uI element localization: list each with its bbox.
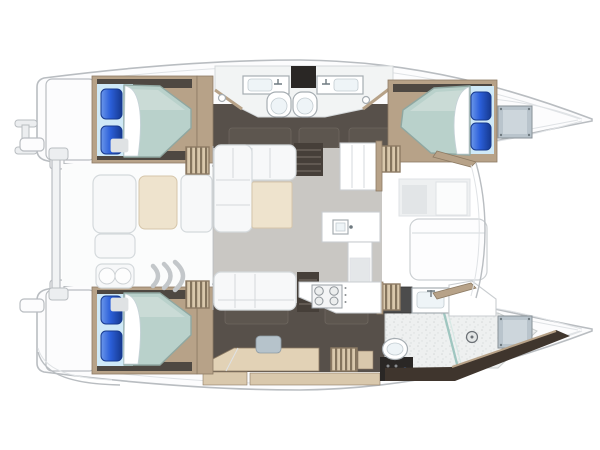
deck-hatch-icon	[498, 106, 532, 138]
step-landing	[358, 351, 373, 369]
starboard-aft-cabin	[92, 287, 197, 374]
winch-port	[111, 139, 128, 152]
companionway-steps	[331, 348, 357, 371]
shower-drain-left	[219, 95, 226, 102]
cockpit	[62, 164, 212, 290]
companionway-alcove-port	[294, 143, 323, 176]
davit-arm-starboard	[20, 299, 44, 312]
shower-drain-right	[363, 97, 370, 104]
shower-drain-icon	[467, 332, 478, 343]
foredeck	[399, 151, 487, 299]
pillow	[471, 92, 491, 120]
fridge-front	[350, 258, 370, 282]
shelf-strip	[250, 373, 380, 385]
sun-lounger	[410, 219, 487, 280]
bench-cushion	[181, 175, 212, 232]
heads-center-cabinet	[291, 66, 316, 88]
swim-platform	[46, 290, 95, 371]
stool	[256, 336, 281, 353]
companionway-steps-aft-starboard	[186, 281, 209, 308]
double-seat	[96, 264, 134, 288]
winch-starboard	[111, 298, 128, 311]
davit-arm-port	[20, 138, 44, 151]
coffee-table	[252, 182, 292, 228]
companionway-steps-fwd-port	[380, 146, 400, 172]
cockpit-table-cushion	[139, 176, 177, 229]
crossbeam-bar	[52, 152, 60, 296]
stove-icon	[312, 285, 347, 308]
pillow	[471, 123, 491, 150]
toilet-icon	[383, 339, 408, 360]
pillow	[101, 331, 122, 361]
toilet-right-icon	[293, 92, 317, 117]
floor-plan-stage: Catamaran sailing yacht interior layout …	[0, 0, 600, 450]
tall-cabinet	[340, 143, 377, 190]
catamaran-floor-plan: Catamaran sailing yacht interior layout …	[0, 0, 600, 450]
pillow	[101, 89, 122, 119]
toilet-left-icon	[267, 92, 291, 117]
locker-panel	[399, 179, 470, 216]
aft-bench	[214, 272, 296, 310]
companionway-steps-aft-port	[186, 147, 209, 174]
galley-partition	[376, 141, 382, 191]
washbasin-right-icon	[317, 76, 363, 94]
seat-cushion	[95, 234, 135, 258]
beam-clamp-bottom	[49, 288, 68, 300]
washbasin-left-icon	[243, 76, 289, 94]
beam-clamp-top	[49, 148, 68, 160]
bench-cushion	[93, 175, 136, 233]
